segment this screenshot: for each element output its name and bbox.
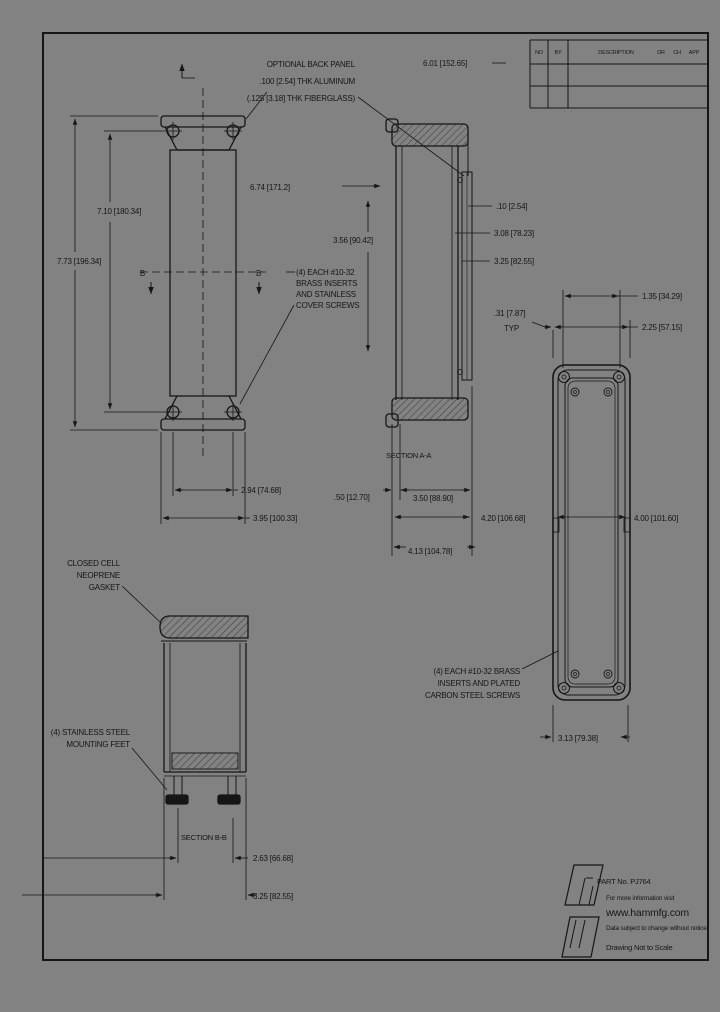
rev-col-description: DESCRIPTION	[598, 50, 634, 56]
front-view-dims	[532, 290, 638, 742]
rev-col-dr: DR	[657, 50, 665, 56]
sheet-border	[43, 33, 708, 960]
section-a-label: SECTION A-A	[386, 451, 432, 460]
note-inserts-bottom-line1: (4) EACH #10-32 BRASS	[433, 667, 520, 676]
section-b-view	[160, 616, 248, 804]
dim-overall-horizontal: 3.95 [100.33]	[253, 514, 297, 523]
dim-panel-thickness: .10 [2.54]	[496, 202, 527, 211]
note-gasket-line2: NEOPRENE	[77, 571, 120, 580]
logo-disclaimer: Data subject to change without notice	[606, 925, 707, 932]
dim-031-typ: TYP	[504, 324, 519, 333]
dim-325-bottom: 3.25 [82.55]	[253, 892, 293, 901]
dim-413: 4.13 [104.78]	[408, 547, 452, 556]
note-back-panel-line1: OPTIONAL BACK PANEL	[267, 60, 356, 69]
dim-420: 4.20 [106.68]	[481, 514, 525, 523]
note-back-panel-line3: (.125 [3.18] THK FIBERGLASS)	[247, 94, 356, 103]
dim-400: 4.00 [101.60]	[634, 514, 678, 523]
dim-031: .31 [7.87]	[494, 309, 525, 318]
dim-313: 3.13 [79.38]	[558, 734, 598, 743]
rev-col-ch: CH	[673, 50, 681, 56]
dim-135: 1.35 [34.29]	[642, 292, 682, 301]
drawing-sheet: NO BY DESCRIPTION DR CH APP B B	[0, 0, 720, 1012]
cut-letter-right: B	[256, 269, 261, 278]
inserts-top-leaders	[240, 272, 295, 404]
note-inserts-top-line4: COVER SCREWS	[296, 301, 359, 310]
note-inserts-top-line3: AND STAINLESS	[296, 290, 356, 299]
dim-225: 2.25 [57.15]	[642, 323, 682, 332]
logo-url: www.hammfg.com	[605, 907, 689, 919]
dim-308: 3.08 [78.23]	[494, 229, 534, 238]
rev-col-no: NO	[535, 50, 544, 56]
note-inserts-bottom-line3: CARBON STEEL SCREWS	[425, 691, 520, 700]
dim-lid-width: 6.74 [171.2]	[250, 183, 290, 192]
note-gasket-line3: GASKET	[89, 583, 121, 592]
note-gasket-line1: CLOSED CELL	[67, 559, 121, 568]
note-feet-line1: (4) STAINLESS STEEL	[51, 728, 131, 737]
cut-letter-left: B	[140, 269, 145, 278]
dim-hole-span-vertical: 7.10 [180.34]	[97, 207, 141, 216]
dim-top-width: 6.01 [152.65]	[423, 59, 467, 68]
dim-325-side: 3.25 [82.55]	[494, 257, 534, 266]
rev-col-app: APP	[689, 50, 700, 56]
feet-leader	[132, 748, 167, 790]
dim-350: 3.50 [88.90]	[413, 494, 453, 503]
section-a-view	[386, 119, 472, 427]
dim-panel-height: 3.56 [90.42]	[333, 236, 373, 245]
dim-050: .50 [12.70]	[334, 493, 370, 502]
front-view	[553, 365, 630, 700]
note-back-panel-line2: .100 [2.54] THK ALUMINUM	[259, 77, 355, 86]
note-inserts-top-line1: (4) EACH #10-32	[296, 268, 355, 277]
dim-263: 2.63 [66.68]	[253, 854, 293, 863]
logo-scale-note: Drawing Not to Scale	[606, 943, 672, 952]
note-inserts-top-line2: BRASS INSERTS	[296, 279, 357, 288]
gasket-leader	[122, 586, 160, 622]
note-feet-line2: MOUNTING FEET	[66, 740, 130, 749]
rev-col-by: BY	[555, 50, 562, 56]
section-b-label: SECTION B-B	[181, 833, 227, 842]
plan-view	[140, 64, 266, 458]
dim-hole-span-horizontal: 2.94 [74.68]	[241, 486, 281, 495]
logo-info-text: For more information visit	[606, 895, 675, 902]
drawing-canvas: NO BY DESCRIPTION DR CH APP B B	[0, 0, 720, 1012]
note-inserts-bottom-line2: INSERTS AND PLATED	[438, 679, 521, 688]
plan-view-dims	[70, 116, 250, 524]
dim-overall-vertical: 7.73 [196.34]	[57, 257, 101, 266]
part-number: PART No. PJ764	[597, 877, 651, 886]
